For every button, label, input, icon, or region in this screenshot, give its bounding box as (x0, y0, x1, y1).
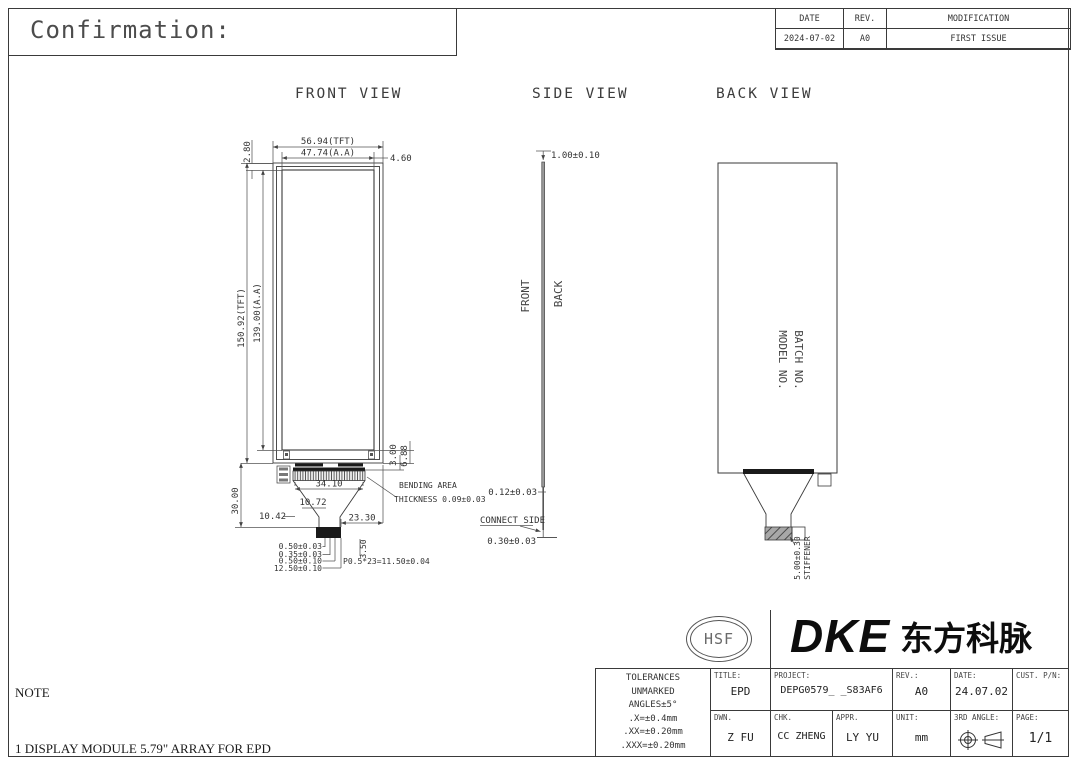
dim-width-aa: 47.74(A.A) (301, 149, 355, 159)
page-cell: PAGE: 1/1 (1013, 711, 1068, 756)
third-angle-icon (957, 727, 1007, 753)
back-view-text: MODEL NO. BATCH NO. 5.00±0.30 STIFFENER (776, 330, 812, 579)
unit-cell: UNIT: mm (893, 711, 951, 756)
rev-value: A0 (893, 685, 950, 698)
title-block: TOLERANCES UNMARKED ANGLES±5° .X=±0.4mm … (595, 668, 1069, 757)
dim-connector-thickness: 0.30±0.03 (487, 537, 536, 547)
chk-label: CHK. (774, 713, 792, 722)
side-front-label: FRONT (519, 279, 532, 312)
project-value: DEPG0579_ _S83AF6 (771, 685, 892, 696)
note-block: NOTE 1 DISPLAY MODULE 5.79" ARRAY FOR EP… (15, 648, 271, 766)
note-title: NOTE (15, 684, 271, 702)
dim-gap-right: 4.60 (390, 154, 412, 164)
dke-logo-latin: DKE (790, 609, 890, 663)
rev-label: REV.: (896, 671, 919, 680)
appr-cell: APPR. LY YU (833, 711, 893, 756)
front-view-dim-text: 56.94(TFT) 47.74(A.A) 4.60 2.80 150.92(T… (231, 137, 486, 573)
dim-width-tft: 56.94(TFT) (301, 137, 355, 147)
appr-value: LY YU (833, 731, 892, 744)
dim-gap-bottom-inner: 6.88 (400, 445, 410, 467)
appr-label: APPR. (836, 713, 859, 722)
side-view-outline (537, 162, 557, 538)
title-value: EPD (711, 685, 770, 698)
dim-tail-width: 10.72 (299, 498, 326, 508)
logo-divider (770, 610, 771, 668)
date-label: DATE: (954, 671, 977, 680)
tolerances-cell: TOLERANCES UNMARKED ANGLES±5° .X=±0.4mm … (596, 669, 711, 756)
side-back-label: BACK (552, 280, 565, 307)
cust-pn-cell: CUST. P/N: (1013, 669, 1068, 711)
drawing-sheet: Confirmation: DATE REV. MODIFICATION 202… (0, 0, 1077, 766)
dwn-label: DWN. (714, 713, 732, 722)
dim-gap-bottom-outer: 3.00 (389, 444, 399, 466)
bending-thickness-label: THICKNESS 0.09±0.03 (394, 495, 486, 504)
dim-height-aa: 139.00(A.A) (253, 283, 263, 343)
bending-area-label: BENDING AREA (399, 481, 457, 490)
project-label: PROJECT: (774, 671, 810, 680)
tolerance-line: .X=±0.4mm (629, 713, 678, 727)
dim-fpc-thickness: 0.12±0.03 (488, 488, 537, 498)
dim-gap-top: 2.80 (243, 141, 253, 163)
side-view-dimensions (480, 151, 551, 532)
dim-pin4: 12.50±0.10 (274, 564, 322, 573)
front-view-outline (273, 163, 383, 483)
dim-thickness: 1.00±0.10 (551, 151, 600, 161)
dim-connector-height: 3.50 (359, 539, 368, 558)
dim-offset-right: 23.30 (348, 514, 375, 524)
connect-side-label: CONNECT SIDE (480, 516, 545, 526)
dim-fpc-length: 30.00 (231, 487, 241, 514)
hsf-logo: HSF (686, 616, 752, 662)
tolerance-line: .XXX=±0.20mm (620, 740, 685, 754)
date-value: 24.07.02 (951, 685, 1012, 698)
dim-offset-left: 10.42 (259, 512, 286, 522)
date-cell: DATE: 24.07.02 (951, 669, 1013, 711)
dwn-cell: DWN. Z FU (711, 711, 771, 756)
project-cell: PROJECT: DEPG0579_ _S83AF6 (771, 669, 893, 711)
unit-value: mm (893, 731, 950, 744)
dim-height-tft: 150.92(TFT) (237, 288, 247, 348)
dim-pin-pitch: P0.5*23=11.50±0.04 (343, 557, 430, 566)
dke-logo: DKE 东方科脉 (790, 608, 1068, 664)
third-angle-label: 3RD ANGLE: (954, 713, 999, 722)
side-view-text: 1.00±0.10 FRONT BACK 0.12±0.03 CONNECT S… (480, 151, 600, 547)
dim-stiffener: 5.00±0.30 (793, 536, 802, 580)
dwn-value: Z FU (711, 731, 770, 744)
cust-pn-label: CUST. P/N: (1016, 671, 1061, 680)
tolerance-line: ANGLES±5° (629, 699, 678, 713)
stiffener-label: STIFFENER (803, 536, 812, 580)
hsf-logo-text: HSF (690, 620, 748, 658)
third-angle-cell: 3RD ANGLE: (951, 711, 1013, 756)
note-item-1: 1 DISPLAY MODULE 5.79" ARRAY FOR EPD (15, 740, 271, 758)
tolerance-line: UNMARKED (631, 686, 674, 700)
chk-value: CC ZHENG (771, 731, 832, 742)
dim-bend-width: 34.10 (315, 480, 342, 490)
tolerance-line: .XX=±0.20mm (623, 726, 683, 740)
dke-logo-chinese: 东方科脉 (900, 612, 1032, 660)
rev-cell: REV.: A0 (893, 669, 951, 711)
title-cell: TITLE: EPD (711, 669, 771, 711)
tolerance-line: TOLERANCES (626, 672, 680, 686)
page-value: 1/1 (1013, 731, 1068, 746)
page-label: PAGE: (1016, 713, 1039, 722)
chk-cell: CHK. CC ZHENG (771, 711, 833, 756)
model-no-label: MODEL NO. (776, 330, 789, 390)
title-label: TITLE: (714, 671, 741, 680)
batch-no-label: BATCH NO. (792, 330, 805, 390)
unit-label: UNIT: (896, 713, 919, 722)
